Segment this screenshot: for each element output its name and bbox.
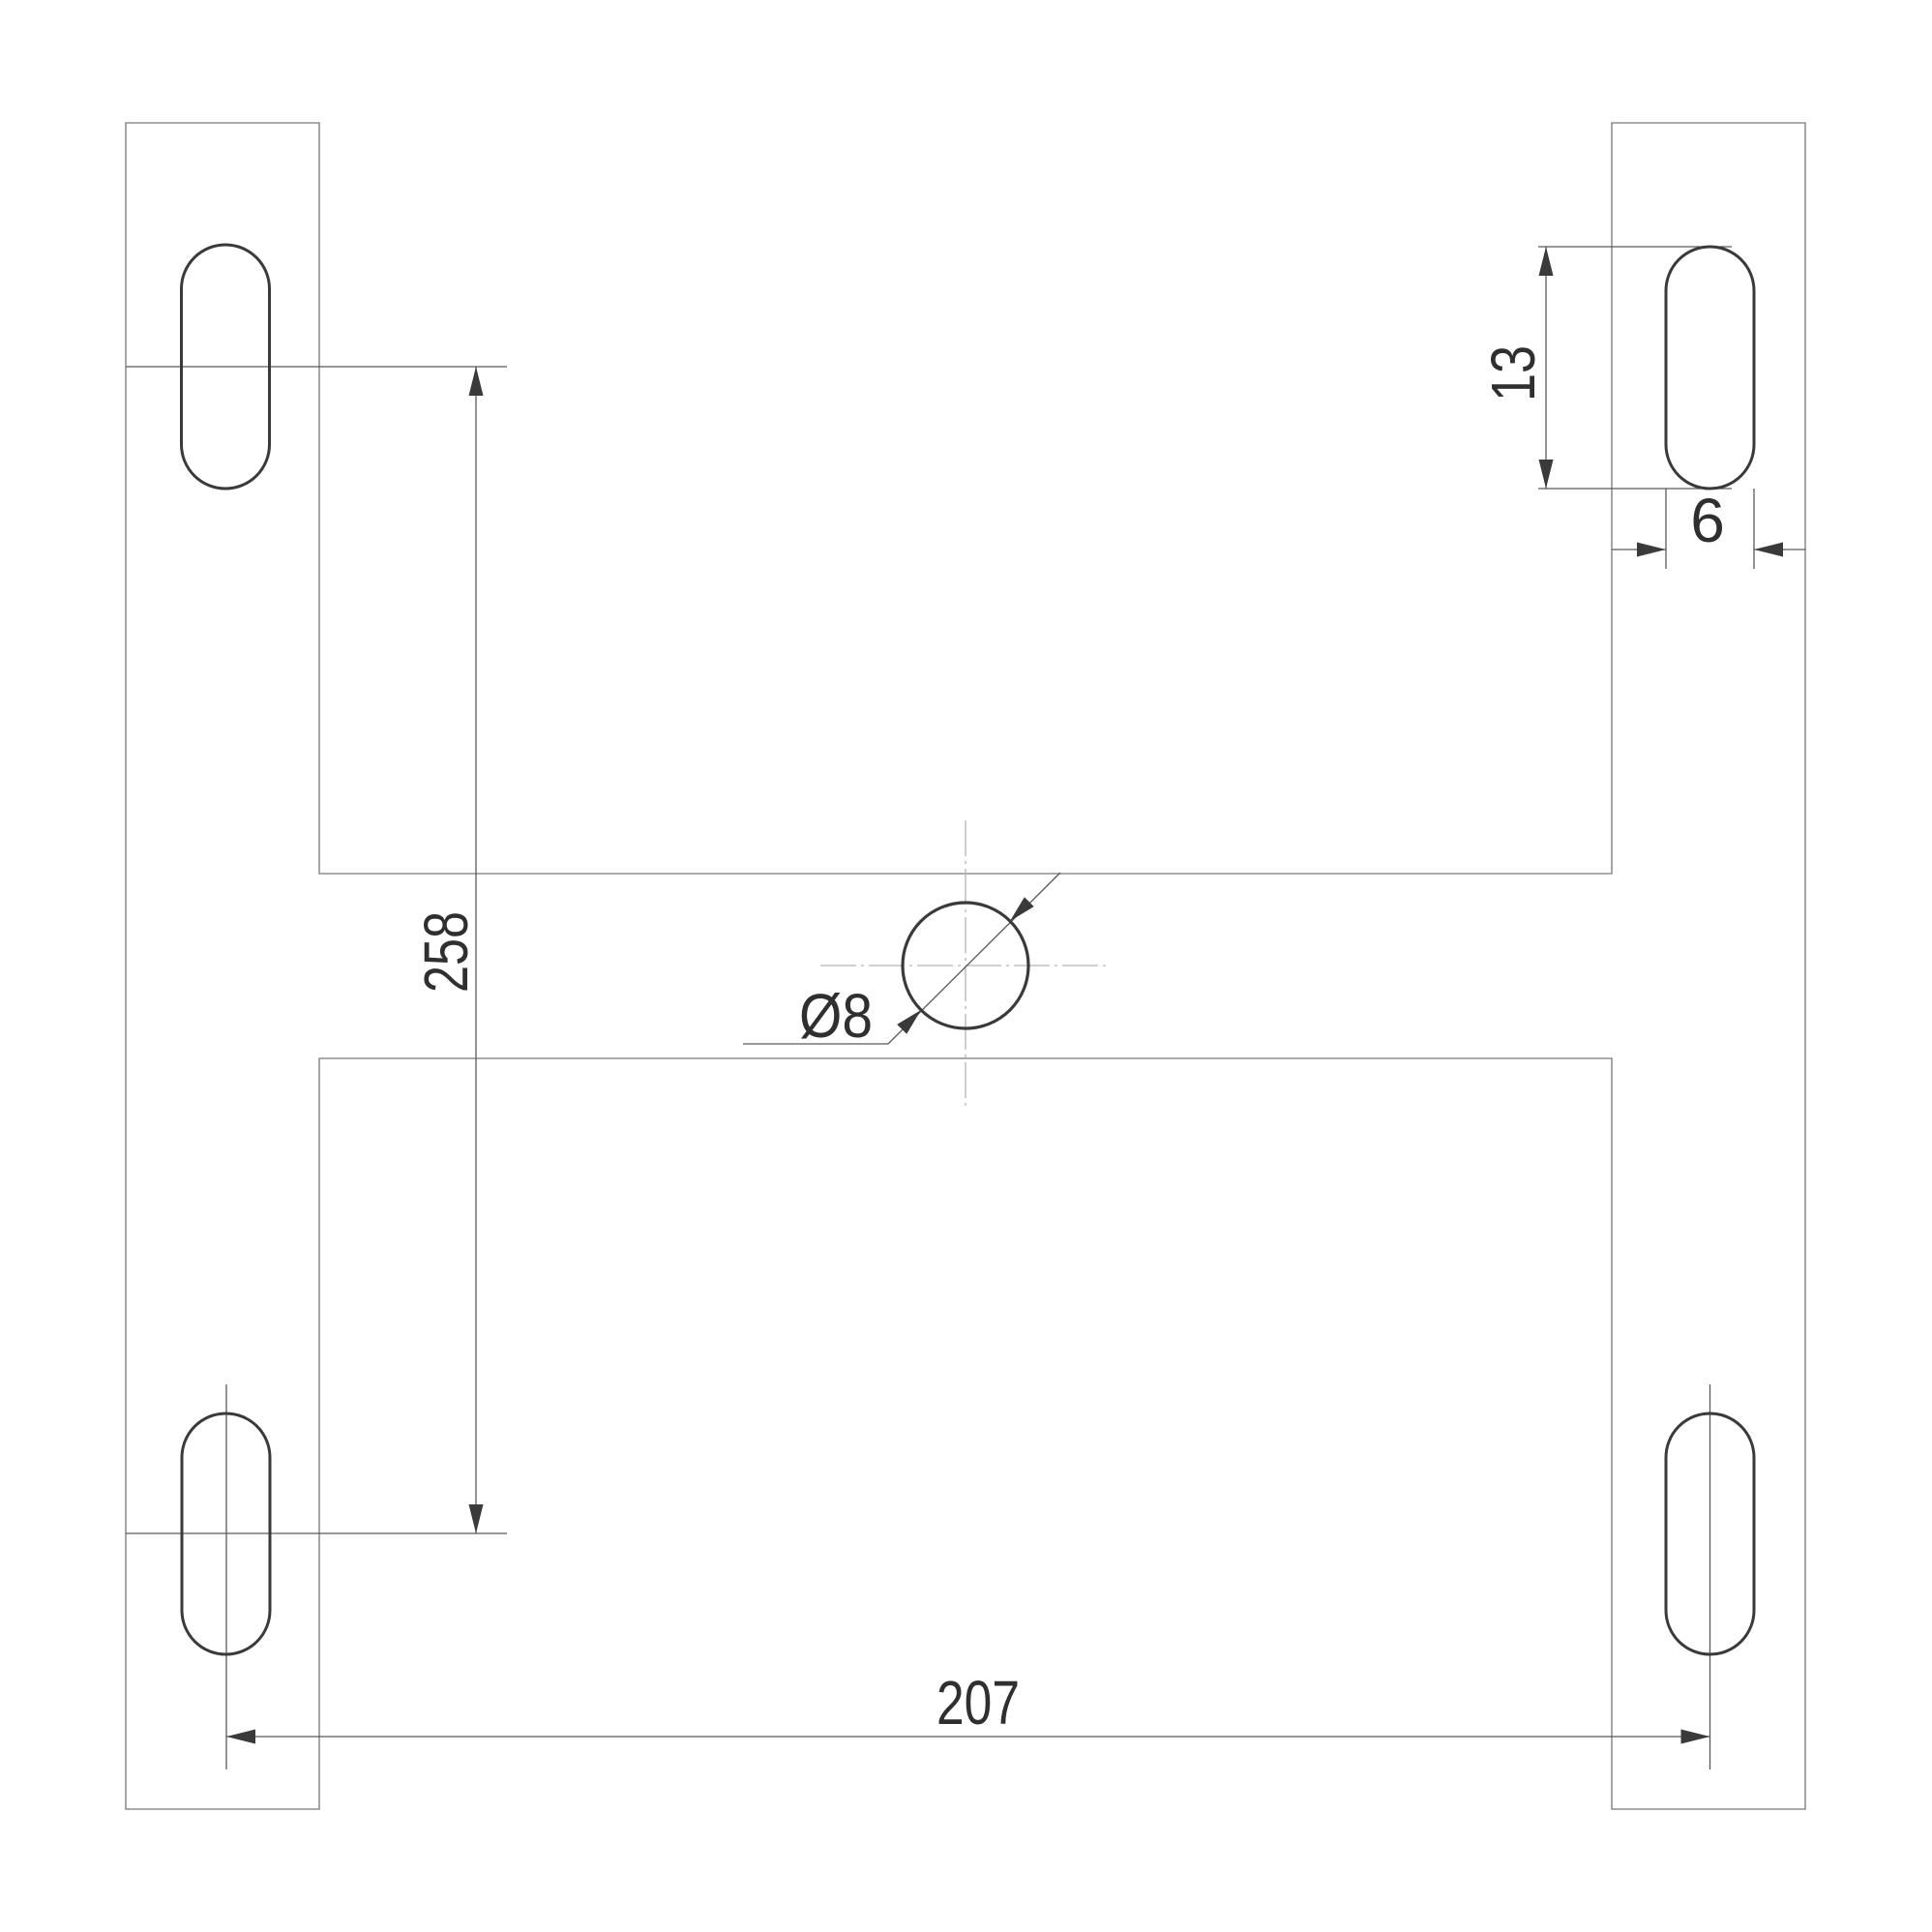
- dim-258-arrow-down: [469, 1504, 484, 1533]
- extension-lines: [126, 247, 1754, 1769]
- dim-207-arrow-right: [1681, 1730, 1710, 1744]
- center-hole-centerlines: [820, 820, 1111, 1111]
- dim-13-arrow-up: [1539, 247, 1554, 276]
- dim-13-label: 13: [1478, 345, 1548, 401]
- dim-6-arrow-left: [1754, 543, 1783, 557]
- dimension-drawing: 258 207 13 6 Ø8: [0, 0, 1932, 1932]
- slot-top-right: [1666, 247, 1754, 489]
- dim-258-arrow-up: [469, 367, 484, 396]
- dim-6-label: 6: [1690, 486, 1725, 555]
- hole-diameter-label: Ø8: [799, 981, 873, 1051]
- hole-leader-arrow-lower: [897, 1010, 921, 1034]
- dim-13-arrow-down: [1539, 460, 1554, 489]
- dim-207-arrow-left: [226, 1730, 255, 1744]
- dim-207-label: 207: [936, 1668, 1020, 1738]
- dim-258-label: 258: [411, 911, 481, 993]
- technical-drawing-canvas: 258 207 13 6 Ø8: [0, 0, 1932, 1932]
- hole-leader-arrow-upper: [1010, 897, 1034, 921]
- dimension-arrows: [226, 247, 1783, 1744]
- dim-6-arrow-right: [1637, 543, 1666, 557]
- dimension-labels: 258 207 13 6 Ø8: [411, 345, 1725, 1738]
